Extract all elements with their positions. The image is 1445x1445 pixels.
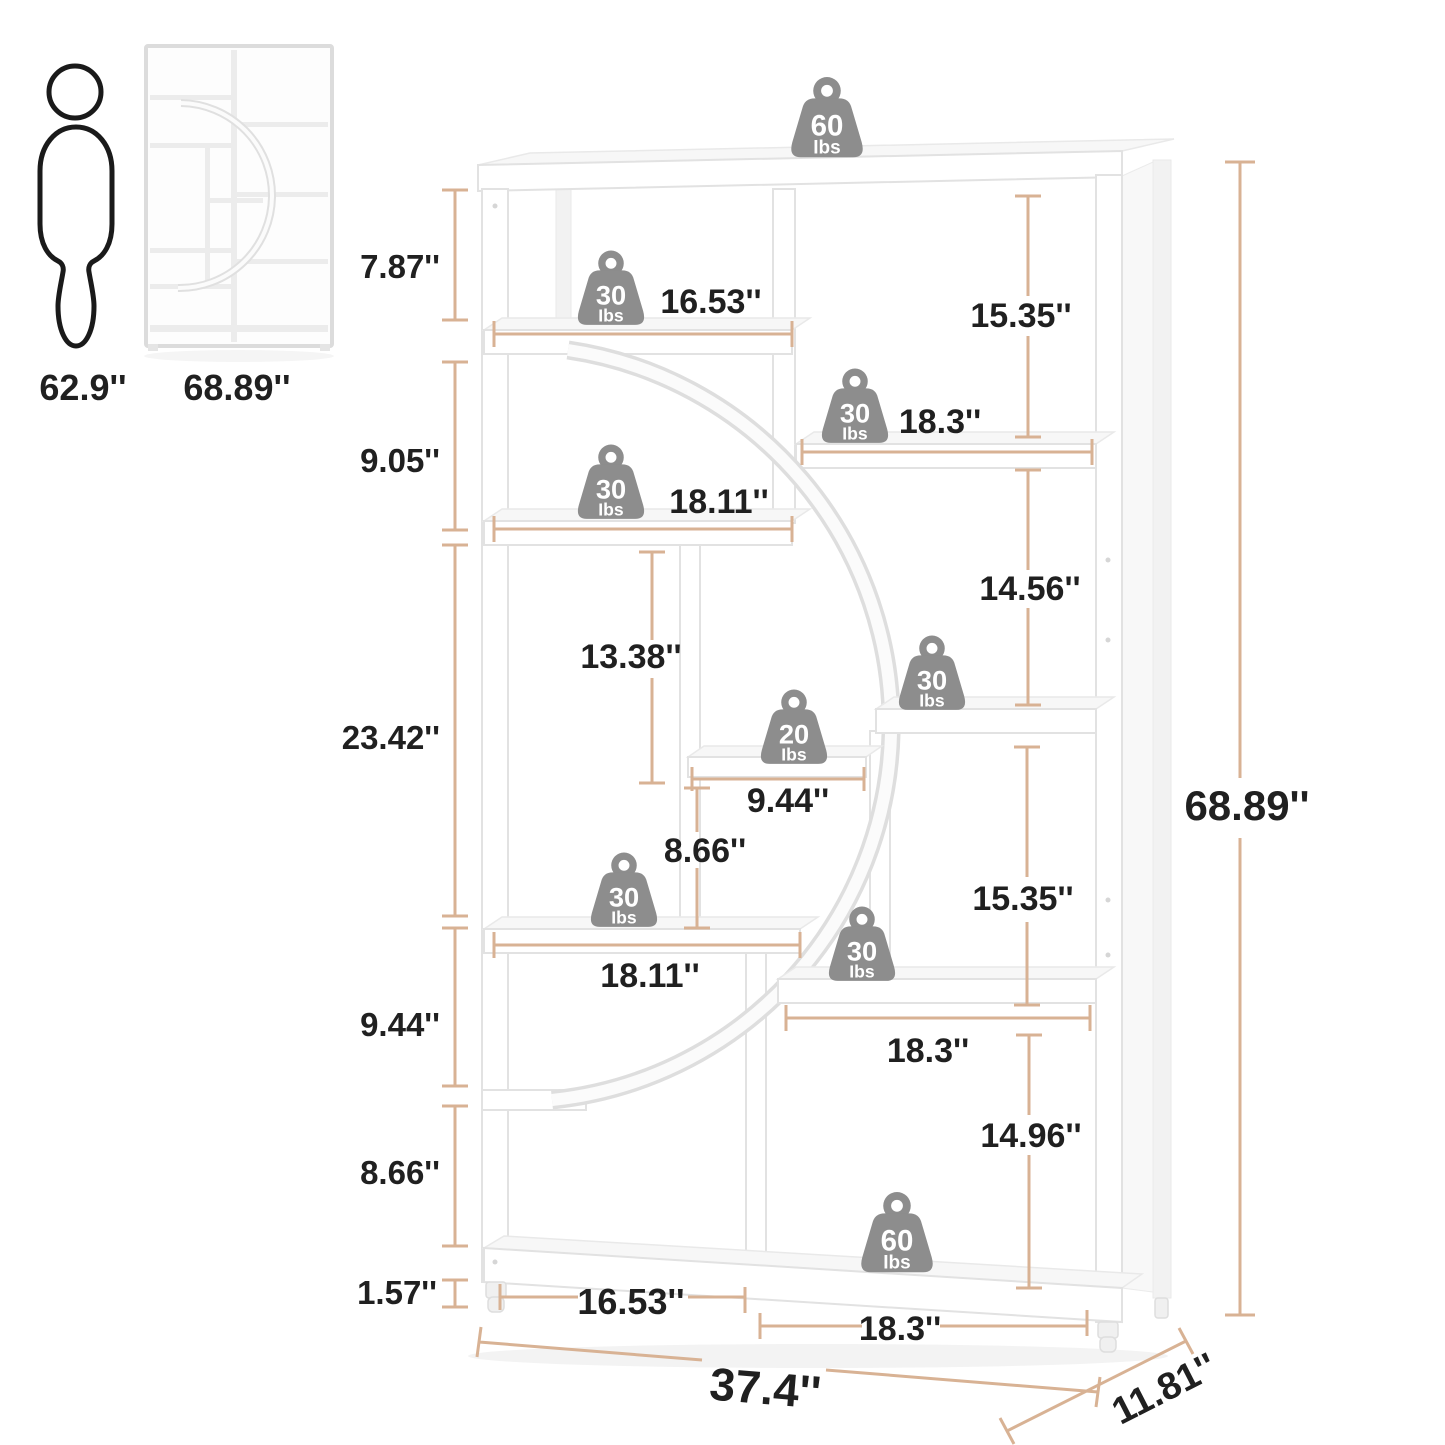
back-right-post <box>1153 160 1171 1298</box>
weight-badge-shelf-middle-right: 30 Ibs <box>899 636 965 711</box>
dim-line-1-57 <box>442 1280 468 1307</box>
label-gap-14-56: 14.56'' <box>979 570 1080 608</box>
front-right-foot-pad <box>1100 1337 1116 1352</box>
svg-text:Ibs: Ibs <box>813 138 840 159</box>
right-side-panel <box>1122 162 1153 1292</box>
dim-line-23-42 <box>442 545 468 916</box>
person-body <box>40 127 112 346</box>
shelf-lower-right <box>778 967 1114 1003</box>
label-shelf-18-3-low: 18.3'' <box>887 1032 969 1070</box>
person-silhouette <box>40 66 112 346</box>
thumbnail-height-label: 68.89'' <box>183 367 290 408</box>
weight-badge-shelf-top-left: 30 Ibs <box>578 251 644 326</box>
svg-text:Ibs: Ibs <box>598 305 624 325</box>
dim-line-9-44-left <box>442 928 468 1086</box>
back-right-foot <box>1155 1298 1168 1318</box>
dim-line-14-96 <box>1016 1035 1042 1288</box>
dim-line-7-87 <box>442 190 468 320</box>
front-right-foot <box>1098 1322 1118 1338</box>
label-gap-8-66: 8.66'' <box>664 832 746 870</box>
label-gap-15-35-low: 15.35'' <box>972 880 1073 918</box>
thumbnail-foot-left <box>148 344 158 351</box>
dim-line-9-05 <box>442 362 468 530</box>
svg-text:Ibs: Ibs <box>919 690 945 710</box>
dim-line-18-3-low <box>786 1005 1090 1031</box>
label-shelf-18-3-top: 18.3'' <box>899 403 981 441</box>
svg-text:Ibs: Ibs <box>849 961 875 981</box>
label-gap-13-38: 13.38'' <box>580 638 681 676</box>
label-height-23-42: 23.42'' <box>342 719 440 756</box>
thumbnail-post <box>205 148 210 284</box>
person-head <box>49 66 101 118</box>
weight-badge-shelf-upper-left: 30 Ibs <box>578 445 644 520</box>
label-overall-height: 68.89'' <box>1184 782 1309 829</box>
weight-badge-bottom-60: 60 Ibs <box>861 1192 932 1273</box>
right-post <box>1096 175 1122 1322</box>
thumbnail-foot-right <box>320 344 330 351</box>
svg-text:Ibs: Ibs <box>883 1253 910 1274</box>
label-gap-15-35-top: 15.35'' <box>970 297 1071 335</box>
label-height-8-66: 8.66'' <box>360 1154 440 1191</box>
label-shelf-9-44: 9.44'' <box>747 782 829 820</box>
weight-badge-top-60: 60 Ibs <box>791 77 862 158</box>
dimension-diagram: 62.9'' 68.89'' <box>0 0 1445 1445</box>
svg-text:Ibs: Ibs <box>781 744 807 764</box>
shelf-top-left <box>484 318 810 354</box>
label-shelf-18-11-top: 18.11'' <box>669 483 768 521</box>
thumbnail-shadow <box>144 350 334 362</box>
label-overall-width: 37.4'' <box>708 1358 823 1419</box>
label-bottom-16-53: 16.53'' <box>577 1281 684 1322</box>
label-bottom-18-3: 18.3'' <box>859 1310 941 1348</box>
label-shelf-18-11-low: 18.11'' <box>600 957 699 995</box>
svg-text:Ibs: Ibs <box>842 423 868 443</box>
front-left-foot-pad <box>488 1297 504 1312</box>
dim-line-8-66-left <box>442 1106 468 1246</box>
label-gap-14-96: 14.96'' <box>980 1117 1081 1155</box>
label-shelf-16-53: 16.53'' <box>660 283 761 321</box>
thumbnail-divider <box>231 50 237 342</box>
weight-badge-small-shelf: 20 Ibs <box>761 690 827 765</box>
bookshelf-thumbnail <box>146 46 332 351</box>
svg-text:Ibs: Ibs <box>611 907 637 927</box>
unit-shadow <box>468 1344 1168 1368</box>
weight-badge-shelf-lower-left: 30 Ibs <box>591 853 657 928</box>
label-height-7-87: 7.87'' <box>360 248 440 285</box>
label-height-9-05: 9.05'' <box>360 442 440 479</box>
dim-line-68-89 <box>1225 162 1255 1315</box>
weight-badge-shelf-upper-right: 30 Ibs <box>822 369 888 444</box>
label-height-9-44: 9.44'' <box>360 1006 440 1043</box>
person-height-label: 62.9'' <box>39 367 126 408</box>
label-height-1-57: 1.57'' <box>357 1274 437 1311</box>
svg-text:Ibs: Ibs <box>598 499 624 519</box>
